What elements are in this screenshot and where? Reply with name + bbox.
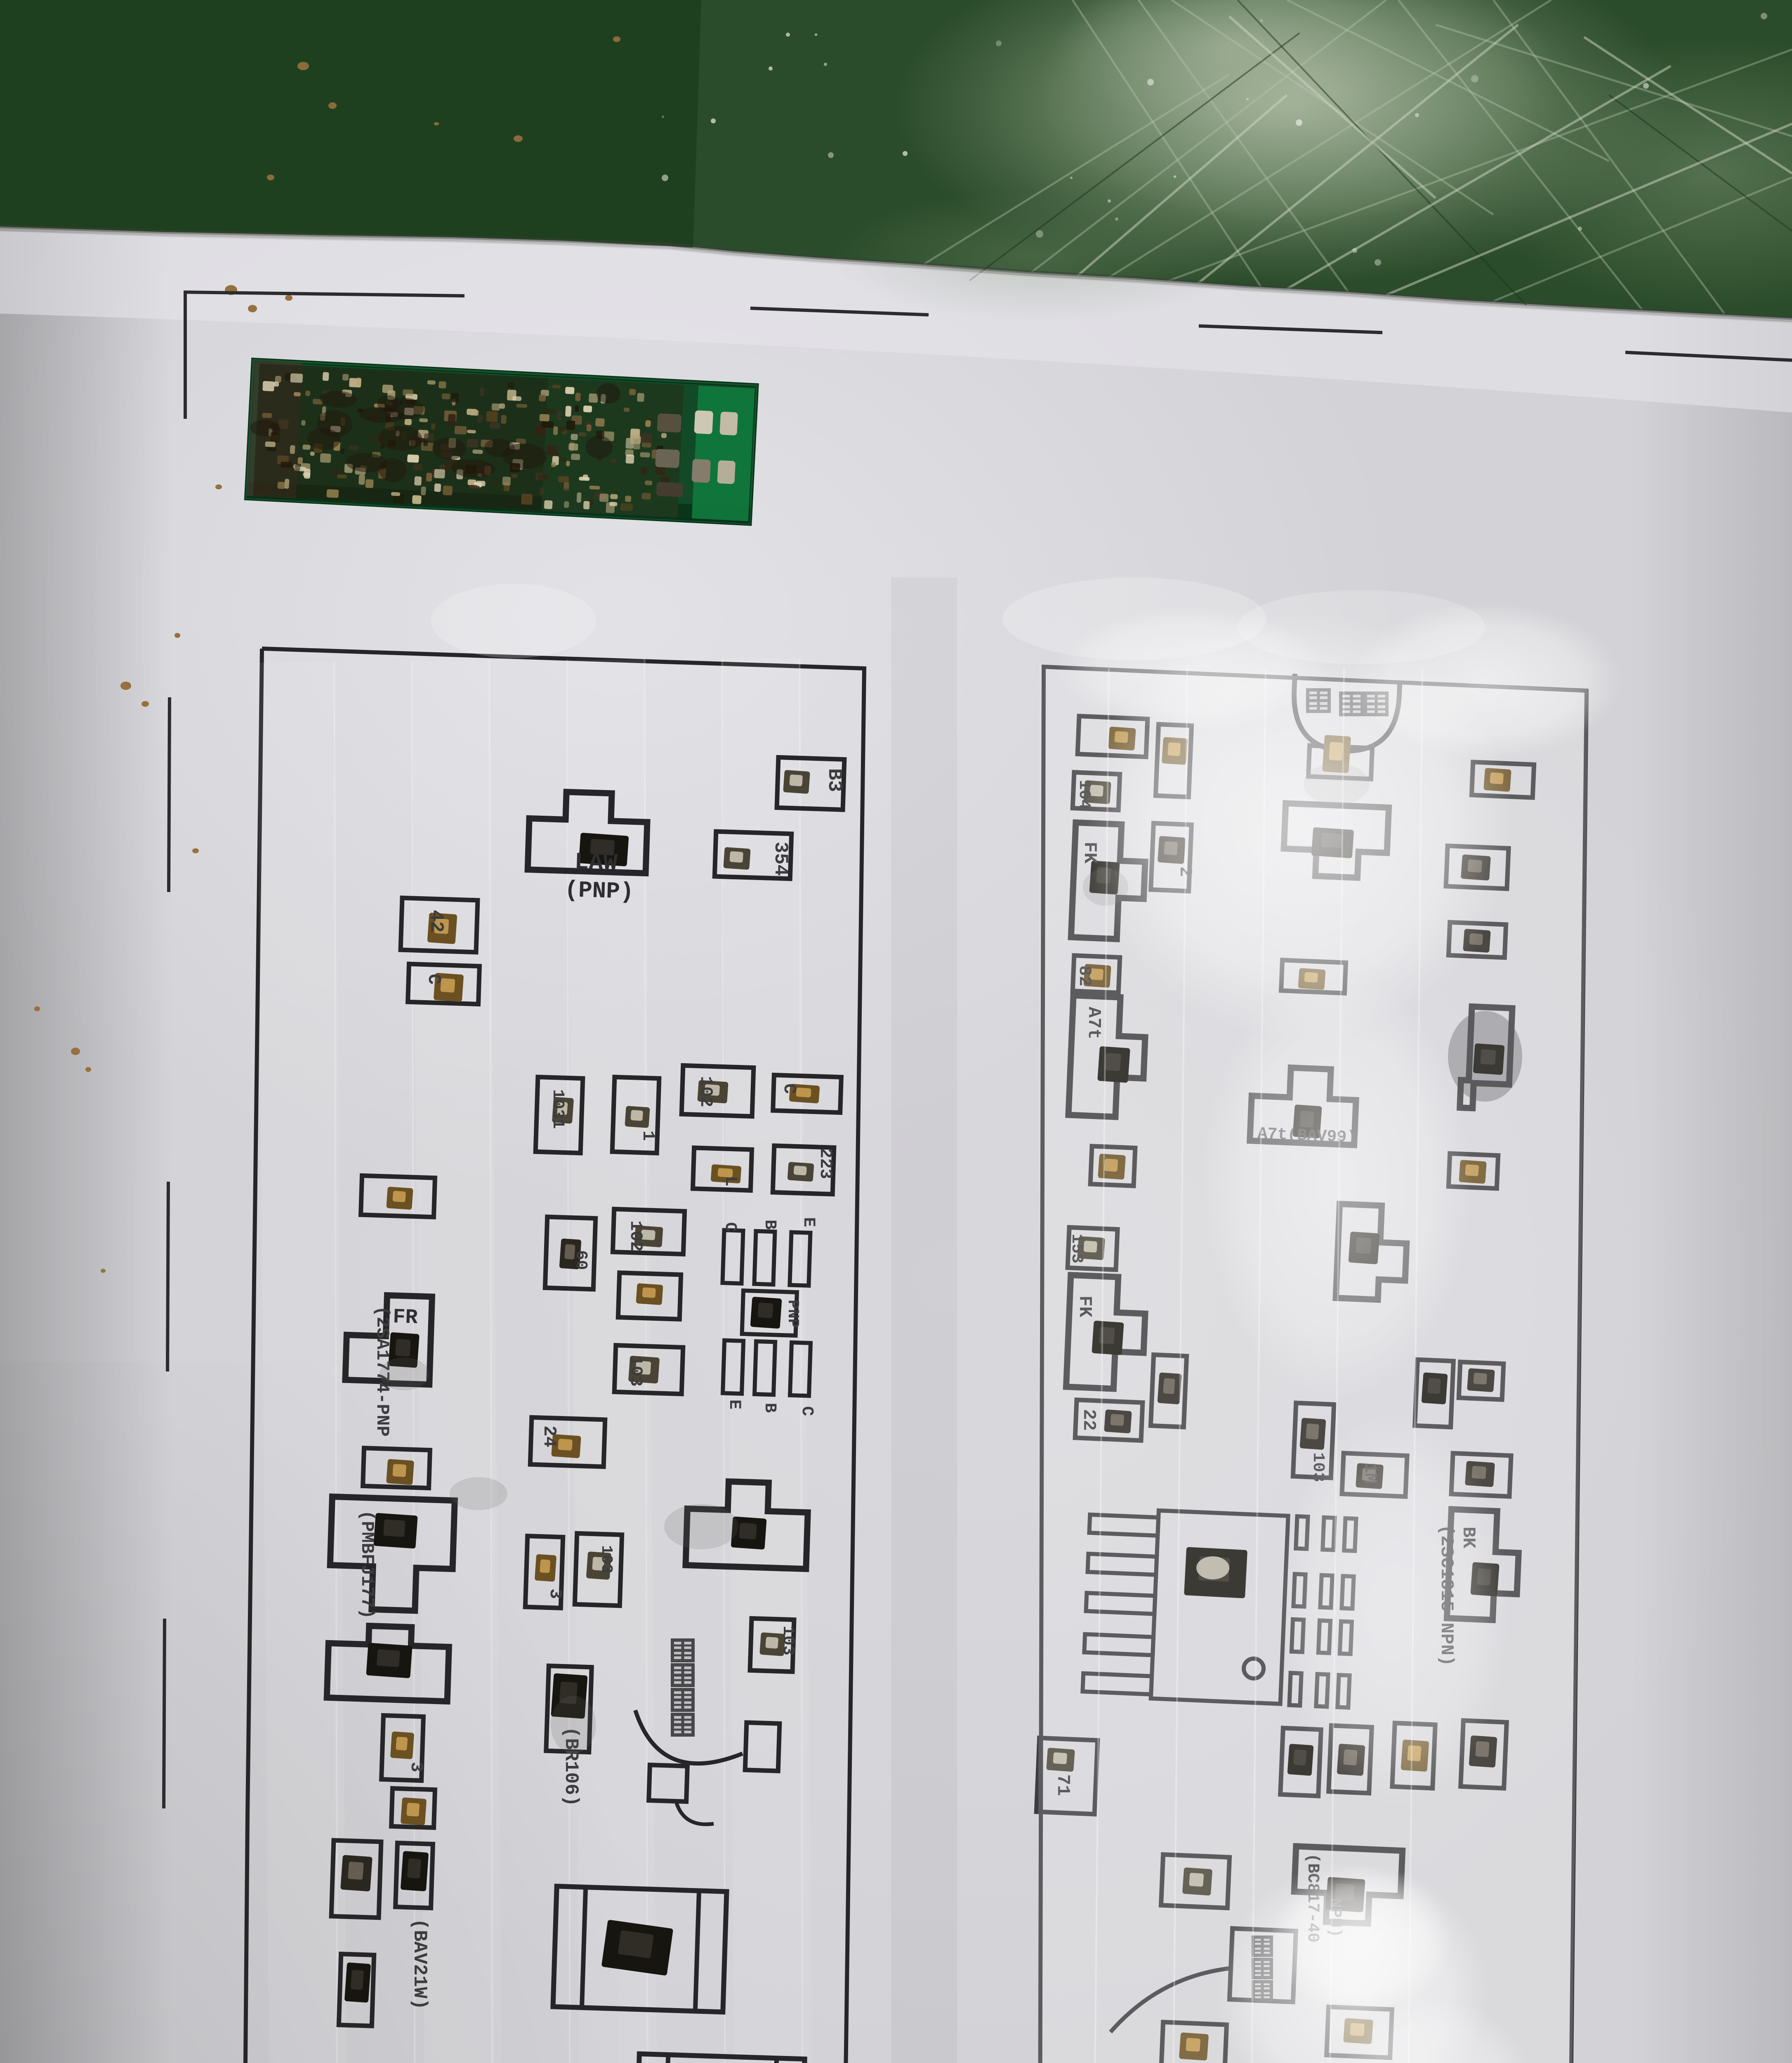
svg-text:(PMBFJ177): (PMBFJ177) xyxy=(356,1510,377,1619)
svg-text:L: L xyxy=(721,1176,740,1186)
svg-text:(PNP): (PNP) xyxy=(564,877,634,905)
svg-text:102: 102 xyxy=(626,1220,646,1252)
svg-text:102: 102 xyxy=(696,1076,716,1107)
svg-text:B: B xyxy=(760,1403,779,1413)
svg-text:103: 103 xyxy=(597,1545,615,1573)
svg-text:FR: FR xyxy=(392,1305,418,1330)
svg-text:E: E xyxy=(799,1217,818,1227)
svg-text:C: C xyxy=(797,1406,816,1416)
svg-text:103: 103 xyxy=(778,1626,797,1655)
svg-text:C: C xyxy=(779,1083,799,1094)
svg-text:3: 3 xyxy=(545,1589,565,1599)
svg-text:PNP: PNP xyxy=(784,1300,802,1328)
svg-text:C: C xyxy=(423,974,444,984)
svg-text:LAW: LAW xyxy=(574,849,618,877)
svg-text:E: E xyxy=(725,1400,743,1409)
svg-text:223: 223 xyxy=(816,1148,835,1179)
svg-text:3: 3 xyxy=(406,1762,426,1772)
svg-text:1031: 1031 xyxy=(548,1089,567,1129)
svg-text:C: C xyxy=(721,1222,739,1232)
svg-text:B3: B3 xyxy=(823,768,845,792)
svg-text:B: B xyxy=(760,1220,779,1230)
svg-text:103: 103 xyxy=(626,1355,646,1387)
svg-text:1: 1 xyxy=(638,1131,658,1141)
svg-text:24: 24 xyxy=(539,1426,559,1447)
svg-text:60: 60 xyxy=(571,1250,590,1270)
svg-text:(BAV21W): (BAV21W) xyxy=(409,1919,430,2010)
svg-text:354: 354 xyxy=(770,842,791,876)
svg-text:42: 42 xyxy=(425,910,447,932)
